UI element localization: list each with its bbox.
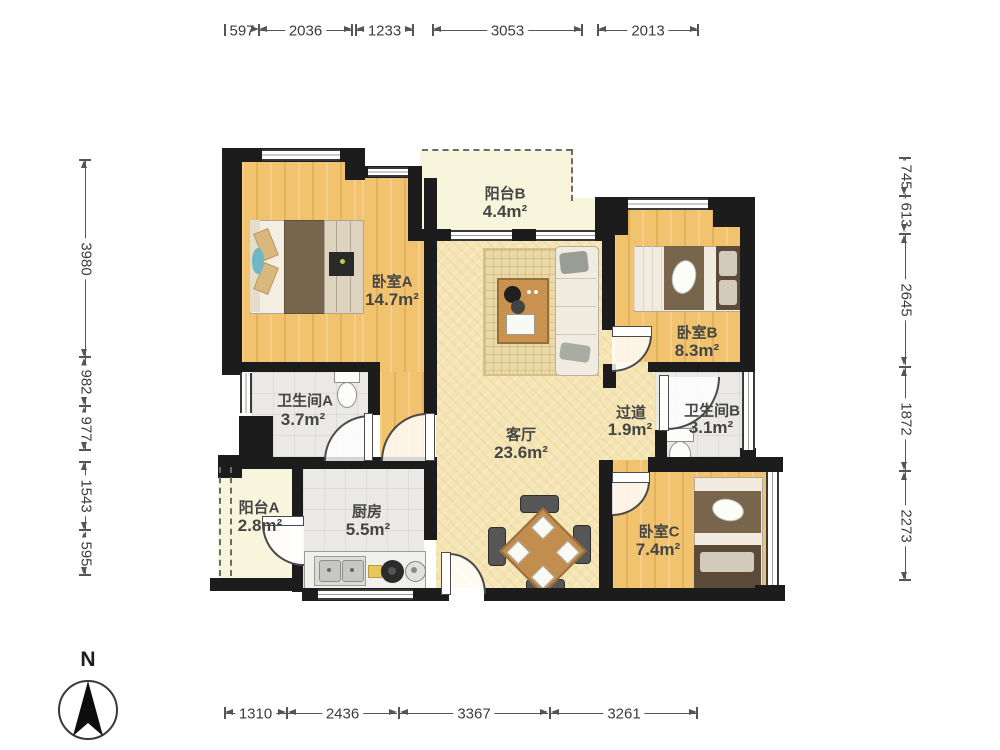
pillow xyxy=(719,251,737,276)
dim-tick xyxy=(79,405,91,407)
sofa-cushion-line xyxy=(556,278,596,279)
dim-left-2-label: 977 xyxy=(78,412,95,445)
balcony-dashed-line xyxy=(230,467,232,576)
dim-left-3-label: 1543 xyxy=(78,475,95,516)
kettle-icon xyxy=(411,567,417,573)
dim-top-0: 597 xyxy=(225,30,259,31)
wall xyxy=(424,457,437,540)
room-area-kitchen: 5.5m² xyxy=(346,520,390,540)
toilet-icon xyxy=(337,382,357,408)
sofa-cushion-line xyxy=(556,306,596,307)
dim-left-4-label: 595 xyxy=(78,537,95,570)
dim-bottom-3: 3261 xyxy=(551,713,697,714)
bed-sheet xyxy=(634,246,664,310)
room-area-living-room: 23.6m² xyxy=(494,443,548,463)
dim-left-2: 977 xyxy=(85,407,86,450)
dim-right-4: 2273 xyxy=(905,472,906,580)
door-leaf xyxy=(659,375,669,431)
door-leaf xyxy=(441,552,451,595)
dim-tick xyxy=(398,707,400,719)
pillow xyxy=(700,552,754,572)
dim-right-0: 745 xyxy=(905,158,906,195)
dim-top-3: 3053 xyxy=(433,30,582,31)
room-area-bedroom-c: 7.4m² xyxy=(636,540,680,560)
pillow xyxy=(252,248,264,274)
window xyxy=(536,230,595,241)
room-label-bedroom-a: 卧室A xyxy=(372,271,413,292)
dim-tick xyxy=(899,470,911,472)
dim-tick xyxy=(224,707,226,719)
dim-bottom-0: 1310 xyxy=(225,713,286,714)
dim-left-4: 595 xyxy=(85,532,86,575)
room-area-bathroom-b: 3.1m² xyxy=(689,418,733,438)
floor-plan-canvas: 卧室A 14.7m² 阳台B 4.4m² 卧室B 8.3m² 卫生间A 3.7m… xyxy=(0,0,1000,750)
balcony-dashed-line xyxy=(422,149,572,151)
dim-tick xyxy=(899,579,911,581)
dim-bottom-3-label: 3261 xyxy=(603,706,644,723)
door-leaf xyxy=(425,413,435,461)
compass-north-icon xyxy=(50,674,126,746)
balcony-dashed-line xyxy=(571,149,573,201)
room-area-bathroom-a: 3.7m² xyxy=(281,410,325,430)
dim-bottom-1: 2436 xyxy=(288,713,397,714)
room-label-bedroom-c: 卧室C xyxy=(639,521,680,542)
pillow xyxy=(719,280,737,305)
floor-balcony-b xyxy=(570,198,597,231)
dim-right-3-label: 1872 xyxy=(898,398,915,439)
dim-tick xyxy=(79,356,91,358)
dim-top-2-label: 1233 xyxy=(364,23,405,40)
wall xyxy=(713,197,755,227)
wall xyxy=(424,178,437,415)
room-label-balcony-b: 阳台B xyxy=(485,183,526,204)
dim-top-4: 2013 xyxy=(598,30,698,31)
dim-top-0-label: 597 xyxy=(225,23,258,40)
tv-indicator xyxy=(340,259,345,264)
compass-north-label: N xyxy=(50,648,126,672)
door-leaf xyxy=(612,472,650,483)
dim-tick xyxy=(899,195,911,197)
place-mat xyxy=(531,565,555,589)
cutting-board xyxy=(368,565,382,578)
dim-tick xyxy=(899,157,911,159)
window xyxy=(368,167,408,177)
dim-right-0-label: 745 xyxy=(898,160,915,193)
wall xyxy=(648,362,755,372)
dim-tick xyxy=(258,24,260,36)
decor-bowl xyxy=(511,300,525,314)
dim-bottom-2-label: 3367 xyxy=(453,706,494,723)
dim-right-2-label: 2645 xyxy=(898,279,915,320)
wall xyxy=(512,229,536,241)
room-label-kitchen: 厨房 xyxy=(352,501,382,522)
window xyxy=(451,230,512,241)
dim-left-1-label: 982 xyxy=(78,365,95,398)
stove-burner-icon xyxy=(388,567,396,575)
dim-tick xyxy=(581,24,583,36)
dim-tick xyxy=(79,574,91,576)
wall xyxy=(484,588,612,601)
window xyxy=(628,198,708,210)
dim-tick xyxy=(597,24,599,36)
room-label-balcony-a: 阳台A xyxy=(239,497,280,518)
door-leaf xyxy=(612,326,652,337)
window xyxy=(766,472,779,585)
tv-icon xyxy=(329,252,354,276)
dim-bottom-2: 3367 xyxy=(400,713,548,714)
room-label-bedroom-b: 卧室B xyxy=(677,322,718,343)
dim-right-1-label: 613 xyxy=(898,198,915,231)
door-leaf xyxy=(364,413,373,461)
dim-tick xyxy=(697,24,699,36)
wall xyxy=(210,578,302,591)
window xyxy=(318,589,413,600)
dim-tick xyxy=(351,24,353,36)
dim-tick xyxy=(79,529,91,531)
wall xyxy=(648,457,783,472)
dim-right-2: 2645 xyxy=(905,235,906,365)
room-area-balcony-b: 4.4m² xyxy=(483,202,527,222)
dim-left-0: 3980 xyxy=(85,160,86,357)
dim-tick xyxy=(286,707,288,719)
wall xyxy=(602,197,615,330)
dim-left-3: 1543 xyxy=(85,462,86,530)
faucet-dot xyxy=(350,568,354,572)
sofa-throw xyxy=(559,251,589,275)
wall xyxy=(242,362,368,372)
faucet-dot xyxy=(327,568,331,572)
window xyxy=(742,372,755,450)
dim-tick xyxy=(79,449,91,451)
dim-top-2: 1233 xyxy=(356,30,413,31)
wall xyxy=(655,430,667,462)
dim-right-1: 613 xyxy=(905,197,906,232)
place-mat xyxy=(556,540,580,564)
dim-top-4-label: 2013 xyxy=(627,23,668,40)
dim-tick xyxy=(355,24,357,36)
place-mat xyxy=(506,540,530,564)
dim-right-3: 1872 xyxy=(905,368,906,470)
decor-dot xyxy=(527,290,531,294)
dim-tick xyxy=(899,366,911,368)
decor-plate xyxy=(506,314,535,335)
dim-top-1: 2036 xyxy=(259,30,352,31)
decor-dot xyxy=(534,290,538,294)
dim-tick xyxy=(696,707,698,719)
dim-left-1: 982 xyxy=(85,358,86,405)
wall xyxy=(599,460,613,601)
room-label-bathroom-a: 卫生间A xyxy=(277,390,333,411)
dim-top-3-label: 3053 xyxy=(487,23,528,40)
room-area-bedroom-b: 8.3m² xyxy=(675,341,719,361)
window xyxy=(240,373,252,413)
dim-tick xyxy=(79,159,91,161)
room-area-bedroom-a: 14.7m² xyxy=(365,290,419,310)
room-label-living-room: 客厅 xyxy=(506,424,536,445)
dim-top-1-label: 2036 xyxy=(285,23,326,40)
place-mat xyxy=(531,516,555,540)
balcony-dashed-line xyxy=(219,467,221,576)
dim-tick xyxy=(899,233,911,235)
bed-blanket xyxy=(284,220,326,314)
dim-left-0-label: 3980 xyxy=(78,238,95,279)
dim-tick xyxy=(432,24,434,36)
wall xyxy=(755,585,785,601)
dim-tick xyxy=(79,461,91,463)
room-area-balcony-a: 2.8m² xyxy=(238,516,282,536)
dim-bottom-0-label: 1310 xyxy=(235,706,276,723)
window xyxy=(262,149,340,161)
wall xyxy=(368,362,380,415)
wall xyxy=(222,148,242,375)
dim-bottom-1-label: 2436 xyxy=(322,706,363,723)
dim-right-4-label: 2273 xyxy=(898,505,915,546)
dim-tick xyxy=(224,24,226,36)
dim-tick xyxy=(549,707,551,719)
room-area-hallway: 1.9m² xyxy=(608,420,652,440)
dim-tick xyxy=(412,24,414,36)
sofa-cushion-line xyxy=(556,334,596,335)
